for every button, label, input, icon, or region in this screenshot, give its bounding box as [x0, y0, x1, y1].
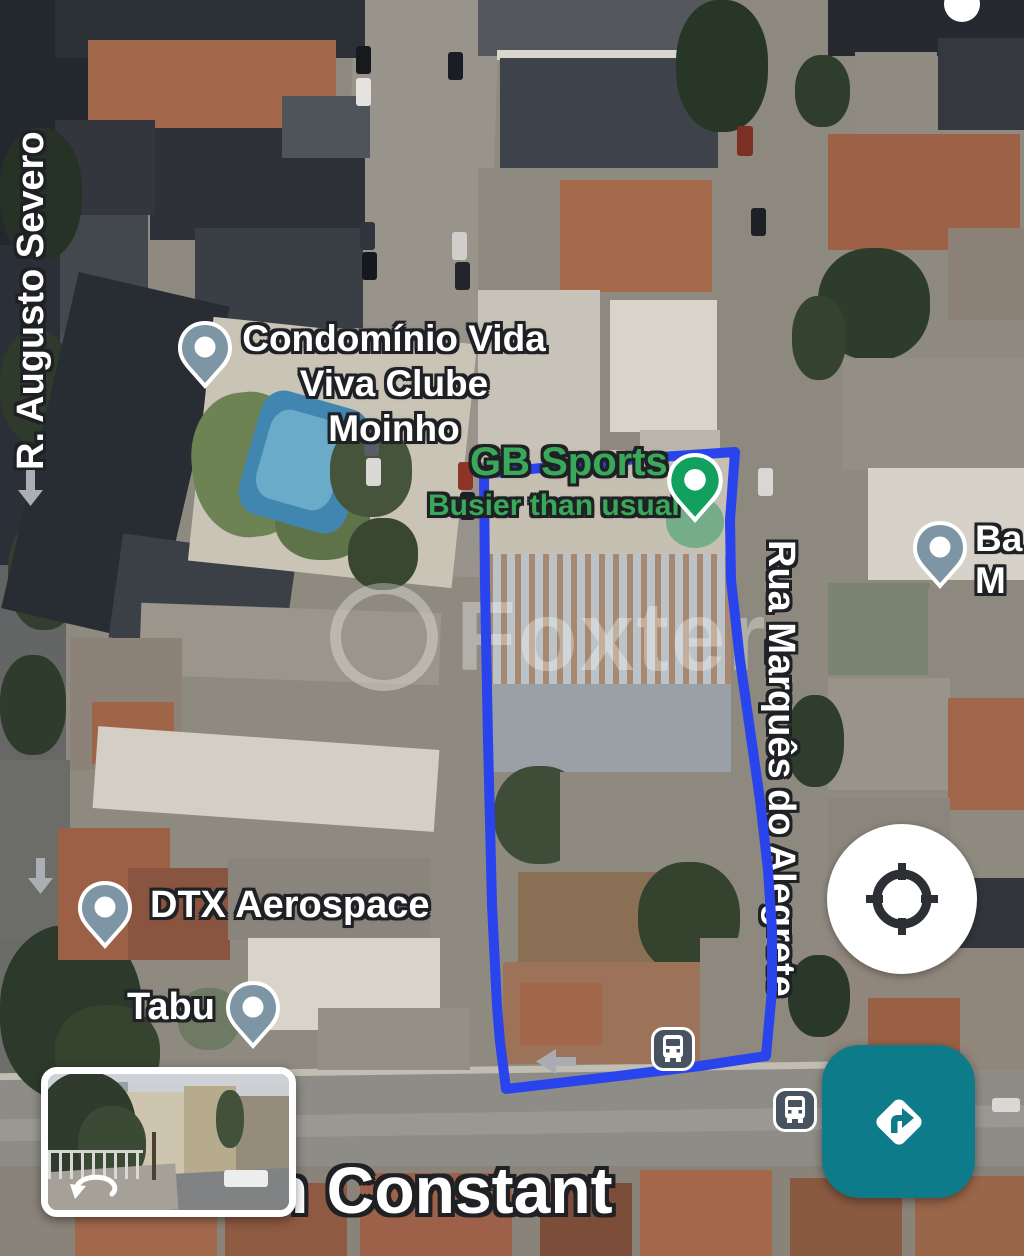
map-car — [758, 468, 773, 496]
map-car — [452, 232, 467, 260]
bus-stop-icon[interactable] — [651, 1027, 695, 1076]
street-view-thumbnail[interactable] — [41, 1067, 296, 1217]
map-feature — [478, 168, 560, 290]
bus-stop-icon[interactable] — [773, 1088, 817, 1137]
pin-icon — [666, 452, 724, 524]
map-car — [751, 208, 766, 236]
map-feature — [948, 698, 1024, 810]
poi-label-gb-sports[interactable]: GB Sports — [470, 440, 668, 485]
map-car — [362, 252, 377, 280]
map-feature — [318, 1008, 470, 1070]
map-car — [448, 52, 463, 80]
map-feature — [828, 678, 950, 790]
map-pin-gb-sports[interactable] — [666, 452, 724, 529]
poi-label-edge-partial[interactable]: Ba M — [975, 518, 1022, 602]
pin-icon — [912, 520, 968, 590]
map-feature — [938, 38, 1024, 130]
thumb-trees — [216, 1090, 244, 1148]
pin-icon — [77, 880, 133, 950]
map-feature — [828, 583, 930, 675]
map-car — [992, 1098, 1020, 1112]
watermark-text: Foxter — [456, 580, 768, 693]
map-car — [366, 458, 381, 486]
watermark-logo-icon — [330, 583, 438, 691]
my-location-button[interactable] — [827, 824, 977, 974]
map-feature — [843, 358, 1024, 470]
map-feature — [93, 726, 440, 832]
map-car — [356, 46, 371, 74]
pin-icon — [177, 320, 233, 390]
map-feature — [855, 52, 937, 134]
map-pin-dtx-aerospace[interactable] — [77, 880, 133, 955]
pin-icon — [225, 980, 281, 1050]
map-car — [455, 262, 470, 290]
directions-arrow-icon — [857, 1080, 941, 1164]
map-feature — [948, 228, 1024, 320]
street-label-marques-do-alegrete: Rua Marquês do Alegrete — [759, 540, 802, 997]
map-car — [737, 126, 753, 156]
poi-label-line: Condomínio Vida — [238, 316, 550, 361]
map-feature — [491, 684, 731, 772]
map-pin-edge-partial[interactable] — [912, 520, 968, 595]
directions-button[interactable] — [822, 1045, 975, 1198]
map-car — [360, 222, 375, 250]
poi-label-line: M — [975, 560, 1022, 602]
map-pin-condominio[interactable] — [177, 320, 233, 395]
map-pin-tabu[interactable] — [225, 980, 281, 1055]
map-car — [356, 78, 371, 106]
poi-status-busier-than-usual: Busier than usual — [428, 489, 680, 523]
gps-crosshair-icon — [864, 861, 940, 937]
map-feature — [640, 1170, 772, 1256]
poi-label-dtx-aerospace[interactable]: DTX Aerospace — [150, 884, 429, 927]
map-feature — [520, 983, 602, 1045]
poi-label-line: Viva Clube Moinho — [238, 361, 550, 451]
thumb-car — [224, 1170, 268, 1187]
map-trees — [792, 296, 846, 380]
map-feature — [560, 180, 712, 292]
thumb-tree-trunk — [152, 1132, 156, 1180]
poi-label-line: Ba — [975, 518, 1022, 560]
map-feature — [700, 938, 762, 1060]
map-trees — [676, 0, 768, 132]
satellite-map[interactable]: Foxter R. Augusto Severo Rua Marquês do … — [0, 0, 1024, 1256]
street-label-augusto-severo: R. Augusto Severo — [10, 131, 53, 470]
map-feature — [610, 300, 717, 432]
street-label-constant: n Constant — [268, 1152, 613, 1228]
map-feature — [560, 772, 732, 874]
watermark: Foxter — [330, 580, 768, 693]
map-trees — [0, 655, 66, 755]
rotate-view-icon — [64, 1166, 126, 1204]
map-trees — [795, 55, 850, 127]
poi-label-condominio[interactable]: Condomínio Vida Viva Clube Moinho — [238, 316, 550, 451]
poi-label-tabu[interactable]: Tabu — [127, 986, 215, 1029]
